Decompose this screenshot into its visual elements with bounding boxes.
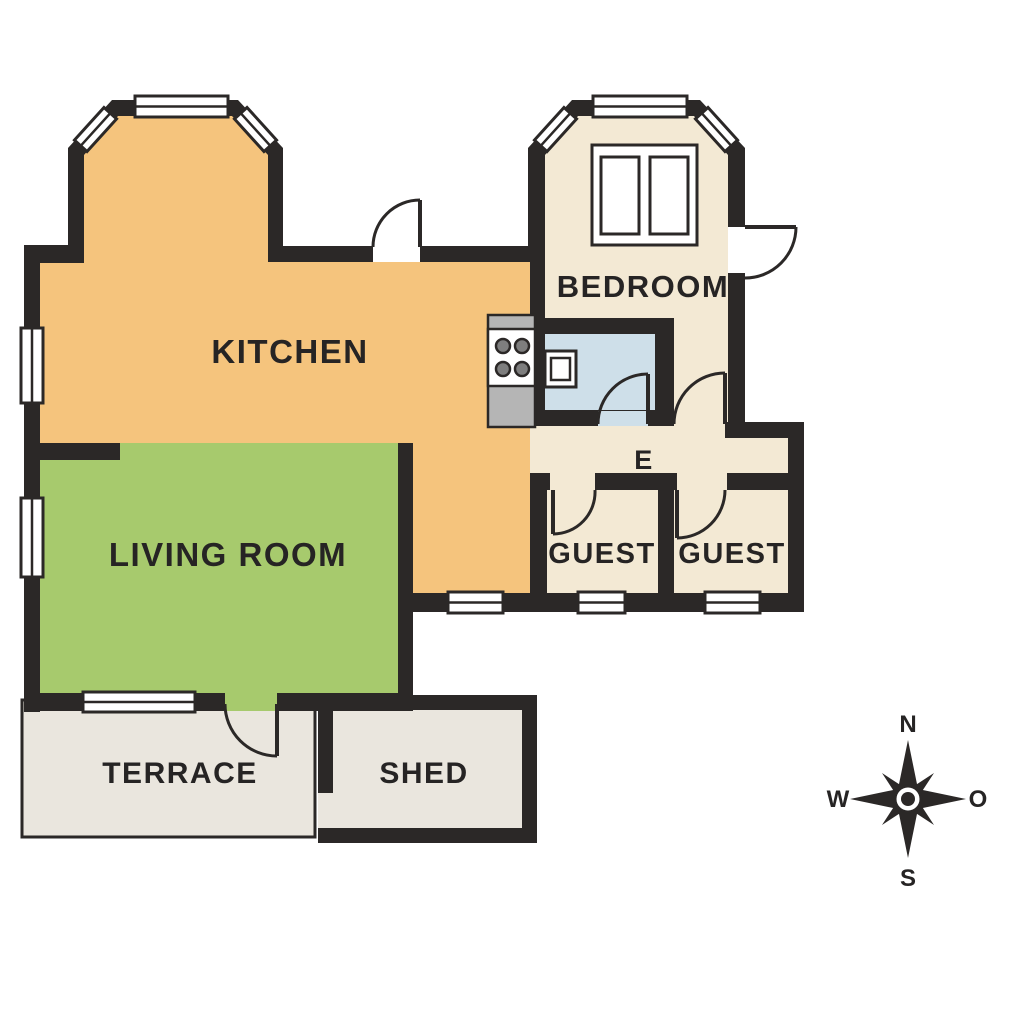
kitchen-label: KITCHEN xyxy=(211,333,368,370)
kitchen-exterior-door xyxy=(373,200,420,247)
compass-north-label: N xyxy=(899,711,916,738)
living-left-window xyxy=(21,498,43,577)
kitchen-left-window xyxy=(21,328,43,403)
bedroom-label: BEDROOM xyxy=(557,269,729,304)
living-room-label: LIVING ROOM xyxy=(109,536,347,573)
guest-left-door-opening xyxy=(550,473,595,490)
wardrobe-icon xyxy=(592,145,697,245)
guest-right-south-window xyxy=(705,592,760,613)
kitchen-bay-top-window xyxy=(135,96,228,117)
floor-plan-page: KITCHEN BEDROOM LIVING ROOM E GUEST GUES… xyxy=(0,0,1024,1024)
right-exterior-wall xyxy=(788,422,804,612)
compass-east-label: O xyxy=(969,786,988,813)
living-south-window xyxy=(83,692,195,712)
guest-right-door-opening xyxy=(677,473,727,490)
floor-plan-drawing: KITCHEN BEDROOM LIVING ROOM E GUEST GUES… xyxy=(0,0,1024,1024)
living-right-wall xyxy=(398,443,413,710)
guest-left-south-window xyxy=(578,592,625,613)
guest-divider-wall xyxy=(658,473,674,612)
guest-left-wall xyxy=(530,473,547,612)
bathroom-door-opening xyxy=(598,411,648,426)
stove-icon xyxy=(488,329,535,386)
bedroom-exterior-door xyxy=(745,227,796,278)
kitchen-top-wall-right xyxy=(420,246,528,262)
compass-west-label: W xyxy=(827,786,850,813)
living-room xyxy=(40,443,398,711)
kitchen-top-wall-left xyxy=(283,246,373,262)
terrace-label: TERRACE xyxy=(102,757,258,790)
toilet-icon xyxy=(545,351,576,387)
guest-right-label: GUEST xyxy=(678,538,785,570)
shed-door-opening xyxy=(318,793,333,828)
bedroom-right-wall xyxy=(728,273,745,438)
hall-bottom-wall-c xyxy=(727,473,788,490)
guest-left-label: GUEST xyxy=(548,538,655,570)
compass-rose-icon: N S W O xyxy=(827,711,988,892)
compass-hub-dot xyxy=(901,792,915,806)
kitchen-counter xyxy=(488,315,535,427)
top-left-step-wall xyxy=(24,245,84,263)
living-bottom-wall-right xyxy=(277,693,413,711)
bedroom-bay-top-window xyxy=(593,96,687,117)
hall-label: E xyxy=(634,445,654,475)
kitchen-south-window xyxy=(448,592,503,613)
shed-label: SHED xyxy=(379,757,468,790)
kitchen-living-stub-wall xyxy=(24,443,120,460)
compass-south-label: S xyxy=(900,865,916,892)
left-exterior-wall xyxy=(24,245,40,712)
